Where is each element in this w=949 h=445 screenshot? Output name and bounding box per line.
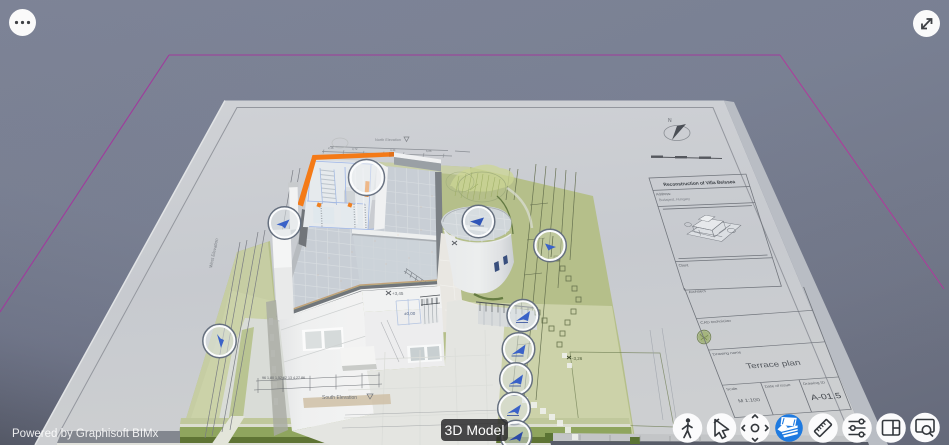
svg-text:±0,00: ±0,00 xyxy=(404,311,416,316)
svg-text:4,44: 4,44 xyxy=(390,148,396,152)
svg-text:96 1,80 1,52 62 13: 96 1,80 1,52 62 13 4,27 86 xyxy=(262,376,305,380)
svg-text:South Elevation: South Elevation xyxy=(322,395,357,401)
svg-text:North Elevation: North Elevation xyxy=(375,138,401,142)
svg-text:3,72: 3,72 xyxy=(352,147,358,151)
svg-text:6,88: 6,88 xyxy=(426,149,432,153)
svg-text:-3,26: -3,26 xyxy=(572,356,583,361)
svg-text:Address:: Address: xyxy=(656,192,672,196)
svg-text:2,48: 2,48 xyxy=(328,146,334,150)
svg-text:N: N xyxy=(668,118,672,124)
svg-text:+3,45: +3,45 xyxy=(392,291,404,296)
